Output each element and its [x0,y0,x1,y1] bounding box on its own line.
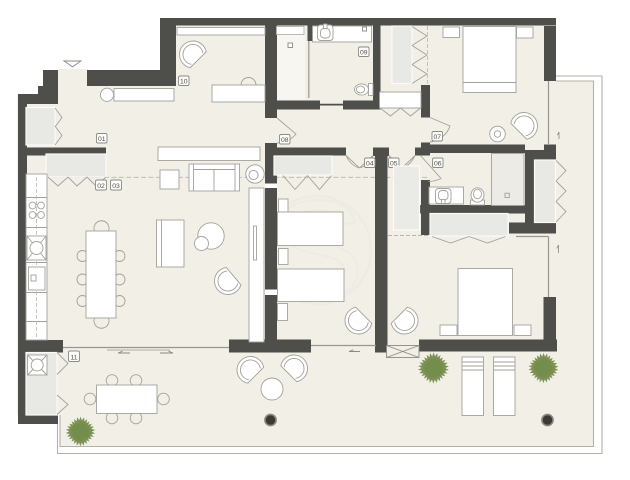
svg-text:04: 04 [366,161,374,168]
svg-text:03: 03 [112,183,120,190]
svg-text:01: 01 [98,136,106,143]
svg-text:06: 06 [434,161,442,168]
svg-text:10: 10 [180,79,188,86]
svg-text:11: 11 [70,354,77,361]
svg-text:07: 07 [434,134,442,141]
svg-text:09: 09 [360,50,368,57]
svg-text:08: 08 [281,137,289,144]
svg-text:02: 02 [97,183,105,190]
